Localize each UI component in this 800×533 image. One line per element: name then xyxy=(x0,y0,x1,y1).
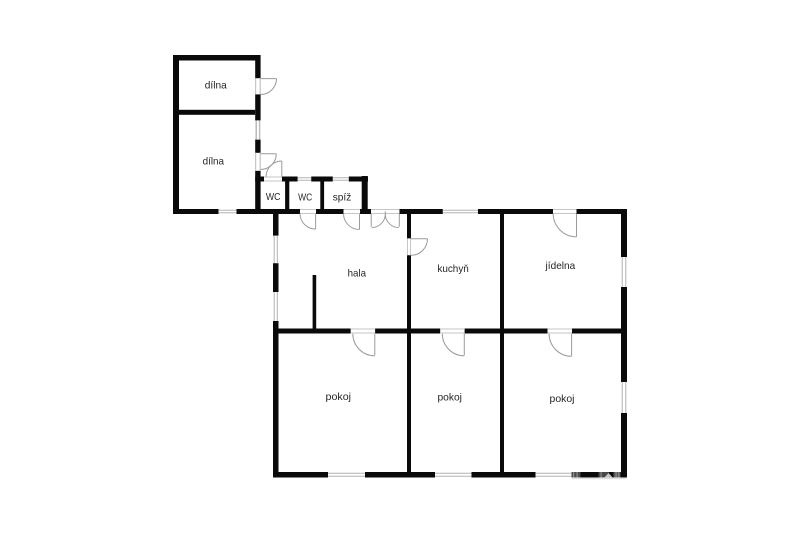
svg-text:kuchyň: kuchyň xyxy=(437,263,469,275)
svg-text:pokoj: pokoj xyxy=(550,393,575,405)
svg-text:dílna: dílna xyxy=(203,156,225,168)
svg-text:spíž: spíž xyxy=(333,192,352,204)
svg-text:pokoj: pokoj xyxy=(326,391,352,403)
svg-text:WC: WC xyxy=(266,191,281,203)
svg-text:hala: hala xyxy=(348,268,367,280)
svg-text:jídelna: jídelna xyxy=(545,260,576,272)
svg-text:dílna: dílna xyxy=(205,79,227,91)
svg-text:pokoj: pokoj xyxy=(437,392,462,404)
svg-text:WC: WC xyxy=(298,191,312,203)
